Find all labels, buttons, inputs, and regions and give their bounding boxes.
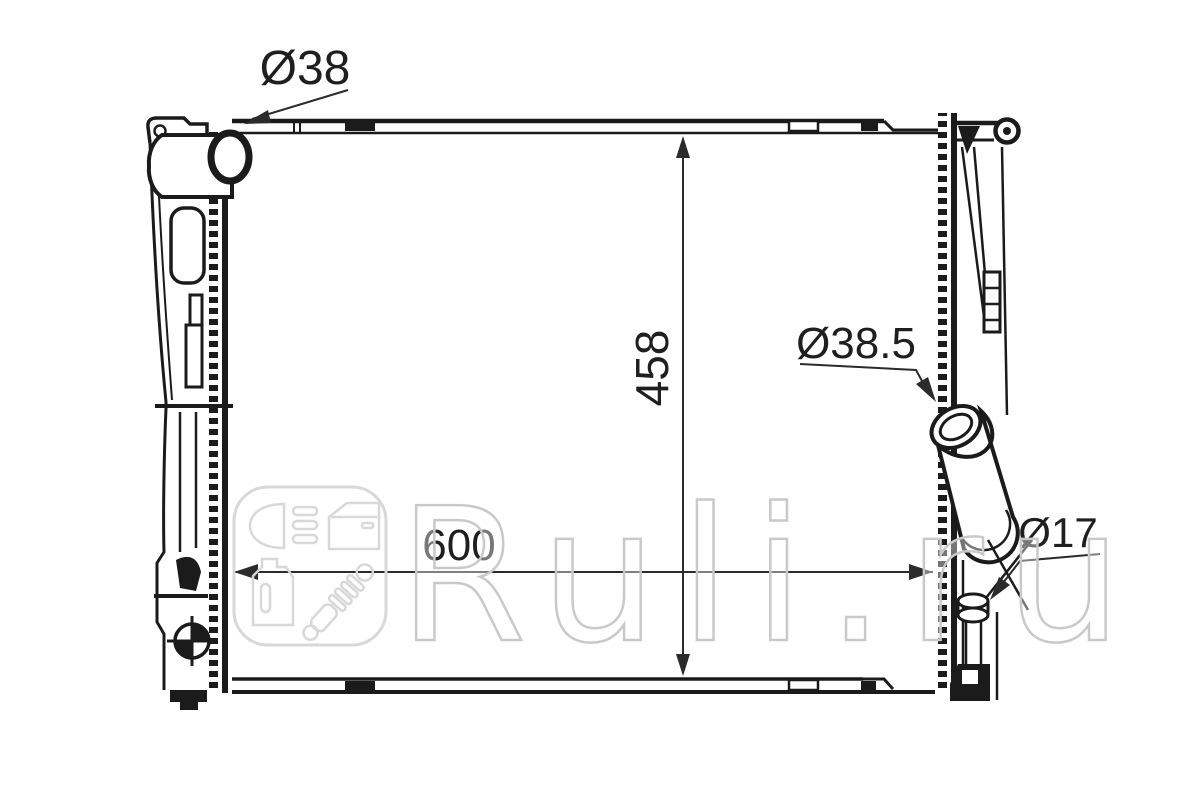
top-clip xyxy=(789,121,818,131)
leader-outlet xyxy=(800,364,936,402)
left-tank xyxy=(148,118,249,710)
headlight-icon xyxy=(250,504,317,548)
car-door-icon xyxy=(329,503,379,549)
watermark-text: Ruli.ru xyxy=(398,468,1144,684)
right-top-bracket xyxy=(957,120,1019,155)
inlet-pipe-opening xyxy=(211,133,249,181)
tank-pocket xyxy=(171,208,204,283)
right-ladder-detail xyxy=(984,272,1000,332)
arrowhead-up xyxy=(676,136,690,158)
label-core-height: 458 xyxy=(626,330,678,407)
top-mount-tab-2 xyxy=(861,123,878,131)
radiator-diagram-page: Ø38 Ø38.5 Ø17 458 600 xyxy=(0,0,1200,800)
label-outlet-diameter: Ø38.5 xyxy=(796,319,916,368)
radiator-diagram: Ø38 Ø38.5 Ø17 458 600 xyxy=(0,0,1200,800)
left-serrated-strip xyxy=(209,131,228,693)
top-mount-tab xyxy=(345,122,375,131)
core-top-edge xyxy=(232,120,938,133)
arrowhead-left xyxy=(234,564,258,580)
left-foot xyxy=(170,690,207,710)
bottom-mount-tab xyxy=(345,681,375,690)
oil-canister-icon xyxy=(253,559,293,625)
label-inlet-diameter: Ø38 xyxy=(260,42,351,95)
watermark: Ruli.ru xyxy=(234,468,1144,684)
